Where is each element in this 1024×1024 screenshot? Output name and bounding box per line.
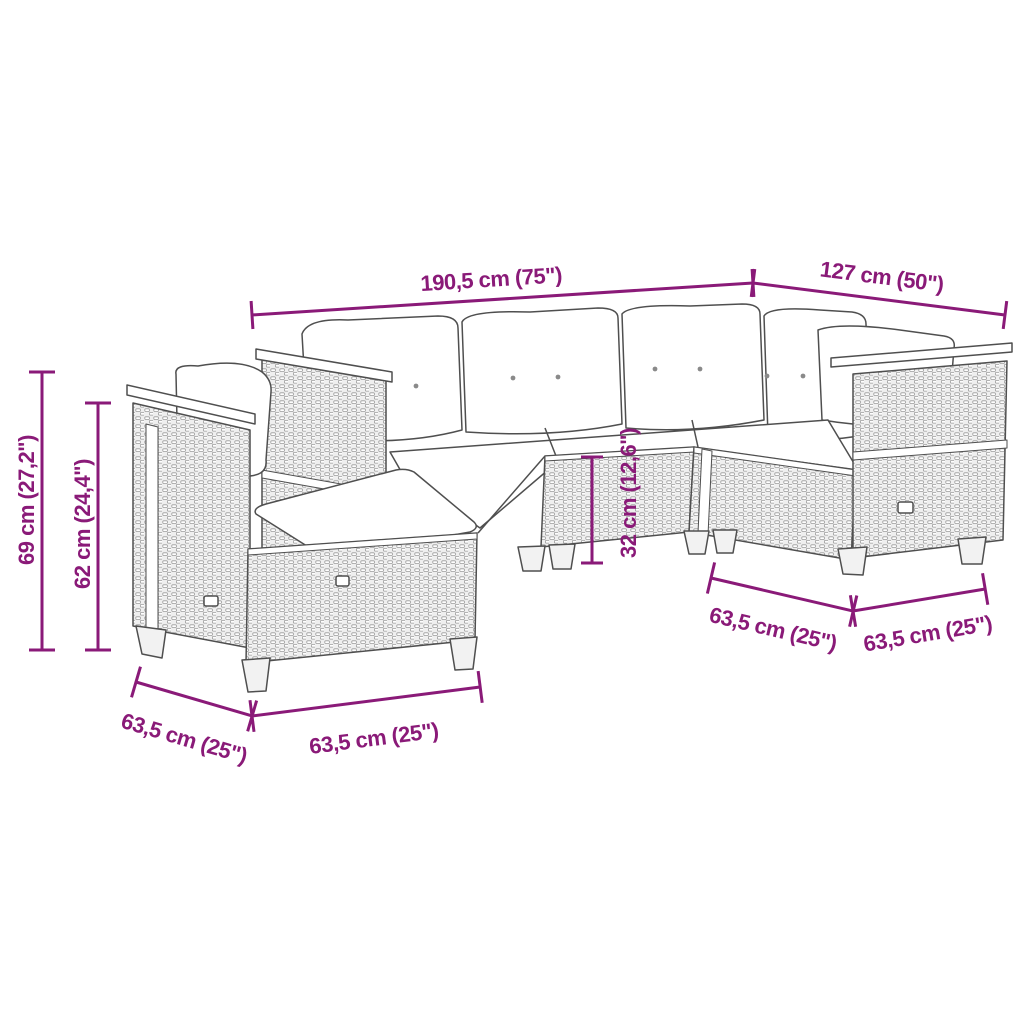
dimension-left-depth: 63,5 cm (25") [118, 666, 262, 769]
dimension-front-module-width: 63,5 cm (25") [250, 671, 486, 765]
dimension-label-arm-height: 62 cm (24,4") [70, 459, 95, 589]
leg [958, 537, 986, 564]
product-dimension-diagram: 190,5 cm (75") 127 cm (50") 69 cm (27,2"… [0, 0, 1024, 1024]
cushion-button [765, 374, 770, 379]
panel-frame-strip [146, 424, 158, 633]
dimension-right-module-width: 63,5 cm (25") [700, 562, 857, 657]
back-cushion [462, 308, 622, 434]
arm-tag [898, 502, 913, 513]
front-tag [336, 576, 349, 586]
leg [713, 530, 737, 553]
right-arm-panel [831, 343, 1012, 558]
dimension-label-right-module-width: 63,5 cm (25") [707, 602, 839, 656]
leg [518, 546, 545, 571]
cushion-button [653, 367, 658, 372]
dimension-label-front-module-width: 63,5 cm (25") [308, 718, 440, 759]
cushion-button [511, 376, 516, 381]
dimension-label-left-depth: 63,5 cm (25") [118, 708, 250, 769]
cushion-button [414, 384, 419, 389]
leg [450, 637, 477, 670]
leg [549, 544, 575, 569]
cushion-button [801, 374, 806, 379]
dimension-label-seat-height: 32 cm (12,6") [616, 428, 641, 558]
dimension-right-depth: 63,5 cm (25") [850, 573, 994, 657]
back-cushion [622, 304, 764, 430]
leg [684, 531, 709, 554]
dimension-arm-height: 62 cm (24,4") [70, 403, 111, 650]
leg [838, 547, 867, 575]
dimension-label-back-height: 69 cm (27,2") [14, 435, 39, 565]
diagram-canvas: 190,5 cm (75") 127 cm (50") 69 cm (27,2"… [0, 0, 1024, 1024]
dimension-label-right-depth: 63,5 cm (25") [862, 610, 994, 656]
left-chair-front-panel [246, 533, 477, 663]
leg [136, 626, 166, 658]
dimension-back-height: 69 cm (27,2") [14, 372, 55, 650]
cushion-button [556, 375, 561, 380]
cushion-button [698, 367, 703, 372]
panel-tag [204, 596, 218, 606]
dimension-label-right-width: 127 cm (50") [819, 256, 946, 296]
dimension-label-total-width: 190,5 cm (75") [420, 262, 563, 296]
leg [242, 658, 270, 692]
